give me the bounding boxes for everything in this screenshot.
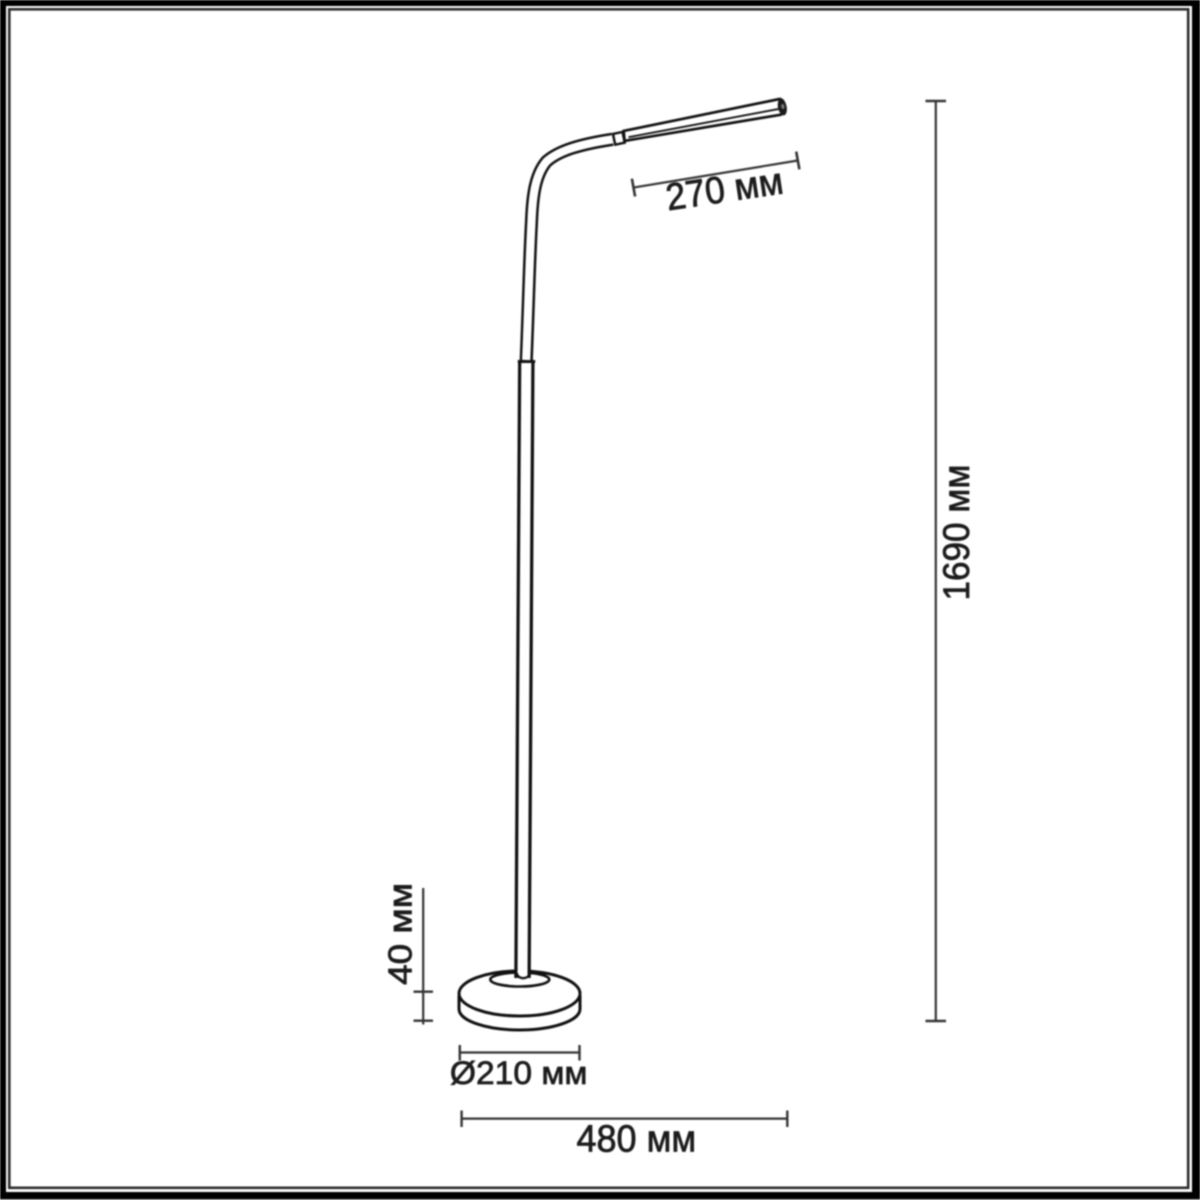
svg-text:480 мм: 480 мм (577, 1118, 697, 1160)
svg-text:40 мм: 40 мм (383, 883, 420, 985)
svg-text:Ø210 мм: Ø210 мм (450, 1055, 588, 1091)
svg-text:1690 мм: 1690 мм (936, 465, 977, 601)
